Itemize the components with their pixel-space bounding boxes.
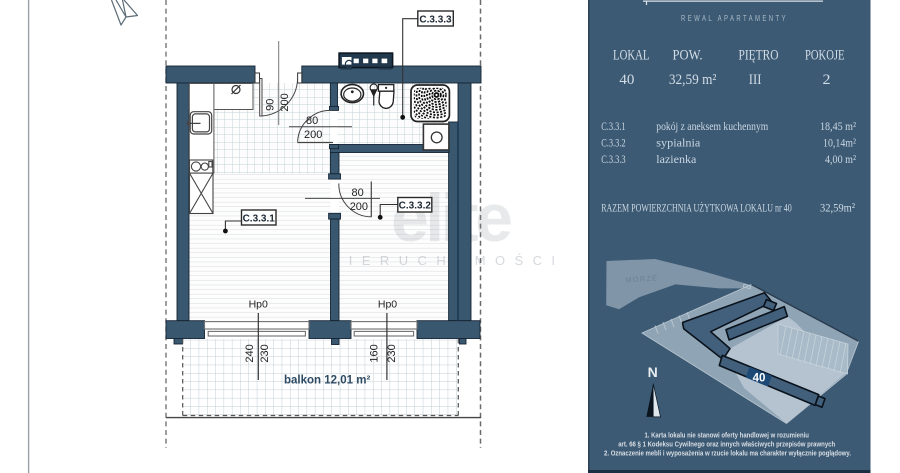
- svg-text:4,00 m²: 4,00 m²: [825, 154, 856, 166]
- svg-text:18,45 m²: 18,45 m²: [820, 121, 856, 133]
- svg-text:POW.: POW.: [673, 48, 703, 64]
- svg-text:90: 90: [265, 99, 277, 111]
- svg-text:80: 80: [306, 115, 318, 127]
- svg-text:PIĘTRO: PIĘTRO: [739, 48, 779, 64]
- svg-text:N: N: [648, 364, 658, 380]
- svg-text:C.3.3.3: C.3.3.3: [419, 15, 452, 26]
- svg-text:200: 200: [350, 201, 368, 213]
- svg-text:REWAL APARTAMENTY: REWAL APARTAMENTY: [681, 13, 788, 23]
- svg-text:NIERUCHOMOŚCI: NIERUCHOMOŚCI: [330, 253, 564, 268]
- svg-text:C.3.3.3: C.3.3.3: [601, 154, 626, 166]
- svg-text:Hp0: Hp0: [249, 299, 268, 311]
- svg-text:C.3.3.1: C.3.3.1: [601, 121, 626, 133]
- svg-text:sypialnia: sypialnia: [656, 138, 700, 150]
- svg-text:160: 160: [368, 344, 380, 362]
- svg-text:lazienka: lazienka: [656, 154, 696, 166]
- svg-text:C.3.3.2: C.3.3.2: [601, 138, 626, 150]
- svg-text:C.3.3.2: C.3.3.2: [399, 201, 432, 212]
- svg-text:LOKAL: LOKAL: [613, 48, 650, 64]
- svg-text:C.3.3.1: C.3.3.1: [243, 214, 276, 225]
- svg-text:32,59m²: 32,59m²: [820, 201, 855, 215]
- svg-text:art. 66 § 1 Kodeksu Cywilnego: art. 66 § 1 Kodeksu Cywilnego oraz innyc…: [618, 442, 835, 449]
- svg-text:1. Karta lokalu nie stanowi of: 1. Karta lokalu nie stanowi oferty handl…: [644, 433, 809, 440]
- svg-text:RAZEM POWIERZCHNIA UŻYTKOWA LO: RAZEM POWIERZCHNIA UŻYTKOWA LOKALU nr 40: [601, 201, 792, 215]
- svg-text:200: 200: [279, 93, 291, 111]
- svg-text:40: 40: [619, 72, 634, 88]
- svg-text:40: 40: [753, 373, 766, 385]
- svg-text:230: 230: [259, 344, 271, 362]
- svg-text:200: 200: [304, 129, 322, 141]
- svg-text:32,59 m²: 32,59 m²: [669, 72, 717, 88]
- svg-text:2: 2: [823, 72, 831, 88]
- svg-text:Hp0: Hp0: [378, 299, 397, 311]
- svg-text:10,14m²: 10,14m²: [823, 138, 856, 150]
- svg-text:2. Oznaczenie mebli i wyposaże: 2. Oznaczenie mebli i wyposażenia w rzuc…: [604, 451, 851, 458]
- svg-text:III: III: [749, 72, 762, 88]
- svg-text:80: 80: [352, 187, 364, 199]
- svg-text:balkon 12,01 m²: balkon 12,01 m²: [284, 375, 370, 387]
- svg-text:POKOJE: POKOJE: [805, 48, 845, 64]
- svg-text:230: 230: [386, 344, 398, 362]
- svg-text:240: 240: [244, 344, 256, 362]
- svg-text:pokój z aneksem kuchennym: pokój z aneksem kuchennym: [656, 121, 768, 133]
